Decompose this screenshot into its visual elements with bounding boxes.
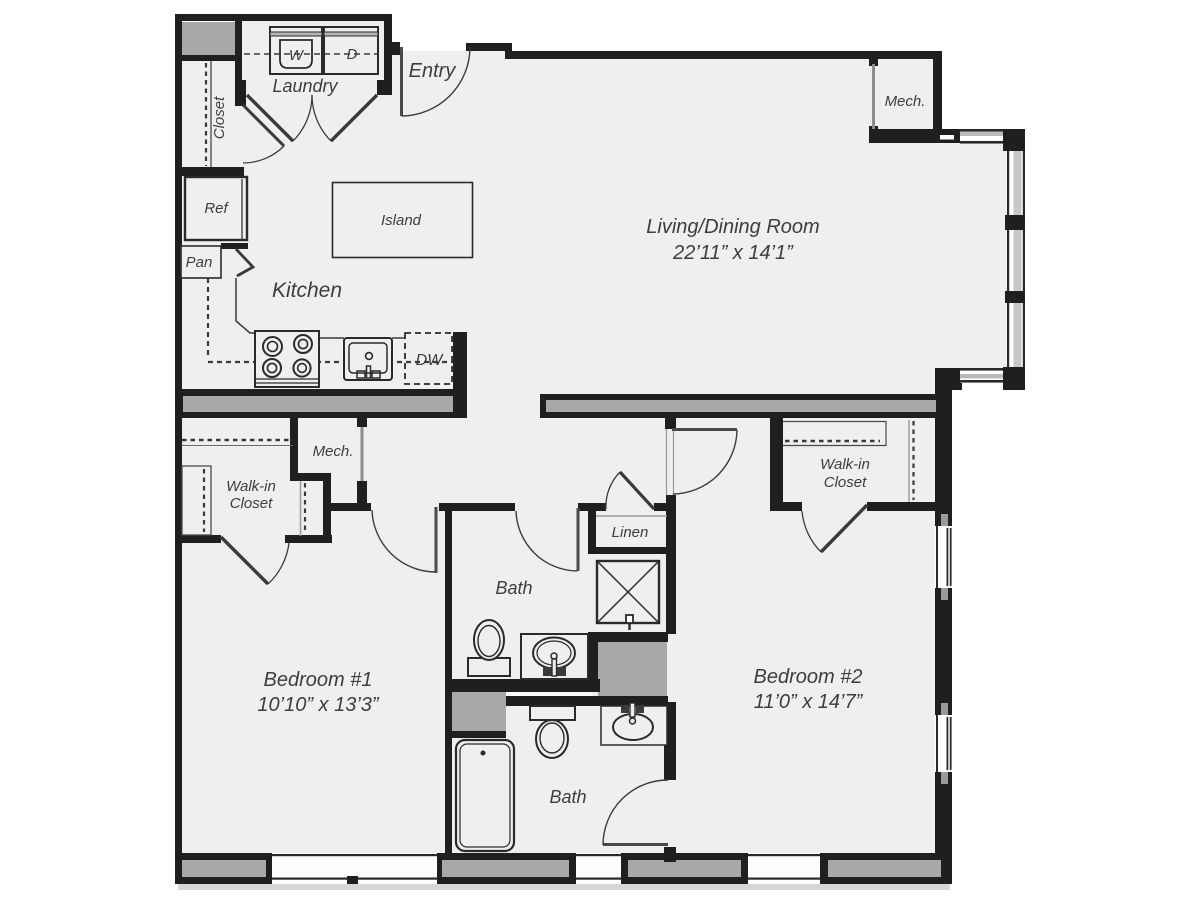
svg-text:Entry: Entry [409, 60, 457, 82]
svg-text:Closet: Closet [824, 474, 867, 491]
svg-text:Kitchen: Kitchen [272, 279, 342, 302]
svg-text:Laundry: Laundry [272, 76, 338, 96]
svg-text:Bedroom #1: Bedroom #1 [264, 669, 373, 691]
svg-text:Mech.: Mech. [885, 93, 926, 110]
svg-text:Pan: Pan [186, 254, 213, 271]
svg-text:D: D [347, 46, 358, 63]
svg-text:22’11” x 14’1”: 22’11” x 14’1” [672, 242, 794, 264]
svg-text:Bath: Bath [495, 578, 532, 598]
svg-text:Mech.: Mech. [313, 443, 354, 460]
svg-text:Walk-in: Walk-in [820, 456, 870, 473]
svg-text:Bedroom #2: Bedroom #2 [754, 666, 863, 688]
svg-text:Walk-in: Walk-in [226, 478, 276, 495]
svg-text:Closet: Closet [211, 96, 228, 139]
svg-text:Living/Dining Room: Living/Dining Room [646, 216, 819, 238]
svg-text:W: W [289, 47, 305, 64]
svg-text:Bath: Bath [549, 787, 586, 807]
svg-text:Closet: Closet [230, 495, 273, 512]
svg-text:11’0” x 14’7”: 11’0” x 14’7” [754, 691, 864, 713]
svg-text:10’10” x 13’3”: 10’10” x 13’3” [257, 694, 380, 716]
svg-text:Linen: Linen [612, 524, 649, 541]
svg-text:DW: DW [416, 352, 445, 369]
svg-text:Island: Island [381, 212, 422, 229]
svg-text:Ref: Ref [204, 200, 229, 217]
